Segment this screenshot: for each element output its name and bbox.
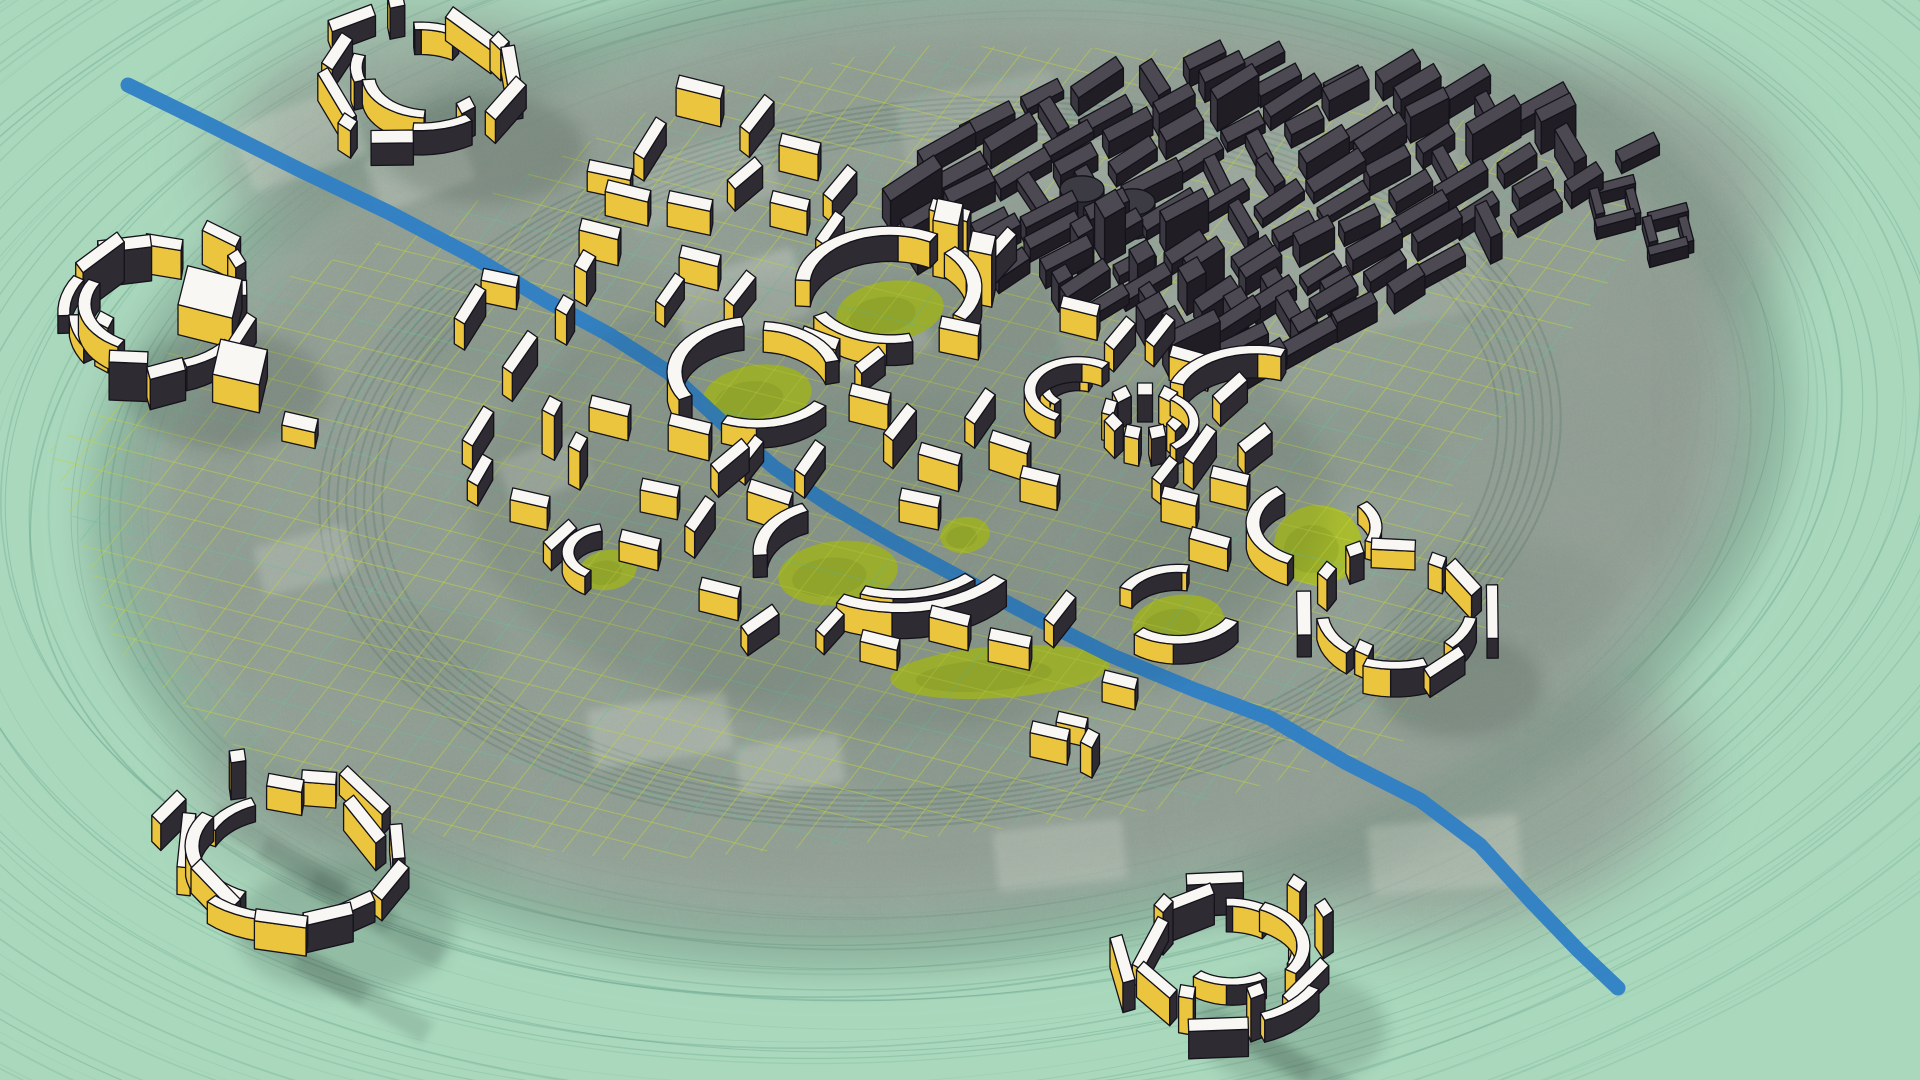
- masterplan-canvas: [0, 0, 1920, 1080]
- masterplan-illustration: [0, 0, 1920, 1080]
